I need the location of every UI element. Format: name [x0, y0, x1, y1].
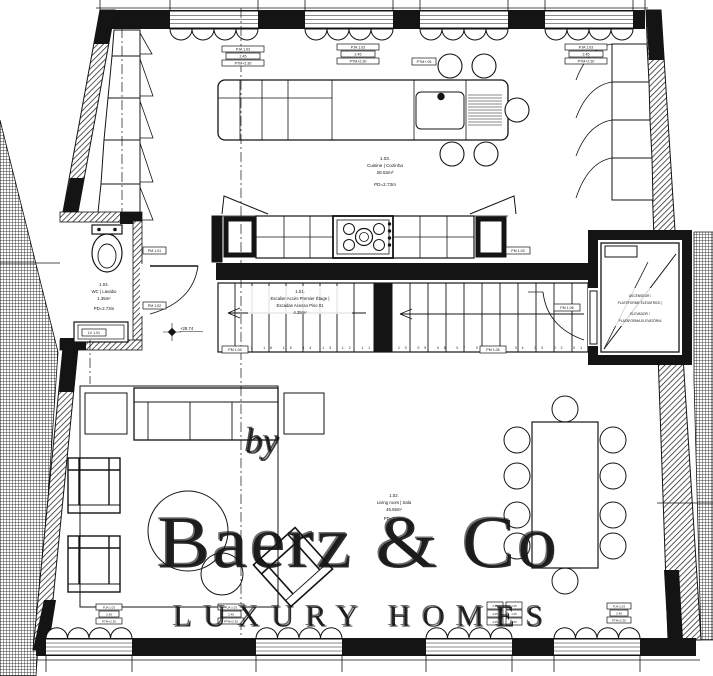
side-table-left — [85, 393, 127, 434]
svg-text:Escadas Acesso Piso 01: Escadas Acesso Piso 01 — [276, 303, 324, 308]
kitchen-counter — [212, 196, 516, 262]
svg-text:PM 1.01: PM 1.01 — [148, 249, 161, 253]
bottom-wall-ticks — [46, 656, 640, 672]
svg-text:PTM+2.30: PTM+2.30 — [578, 60, 595, 64]
top-window-shutters — [170, 29, 633, 40]
svg-text:PJA 1.03: PJA 1.03 — [236, 48, 250, 52]
svg-text:PD=2.73m: PD=2.73m — [94, 306, 115, 311]
svg-text:PM 1.03: PM 1.03 — [511, 249, 524, 253]
svg-text:2.45: 2.45 — [616, 612, 622, 616]
kitchen-island — [218, 80, 508, 140]
floor-plan-drawing: 1.03. Cuisine | Cozinha 28.52m² PD=2.73m — [0, 0, 713, 676]
side-table-right — [284, 393, 324, 434]
svg-text:28.52m²: 28.52m² — [377, 170, 394, 175]
svg-text:WC | Lavabo: WC | Lavabo — [92, 289, 117, 294]
toilet — [92, 225, 122, 272]
svg-text:PJA 1.03: PJA 1.03 — [579, 46, 593, 50]
svg-text:4.35m²: 4.35m² — [293, 310, 307, 315]
svg-text:PTM+2.30: PTM+2.30 — [350, 60, 367, 64]
svg-text:PJA 1.03: PJA 1.03 — [225, 606, 237, 610]
svg-text:Baerz & Co: Baerz & Co — [156, 501, 558, 583]
floor-plan-sheet: 1.03. Cuisine | Cozinha 28.52m² PD=2.73m — [0, 0, 713, 676]
svg-text:PTM+.05: PTM+.05 — [417, 60, 432, 64]
svg-text:PM 1.04: PM 1.04 — [228, 348, 241, 352]
svg-text:2.45: 2.45 — [240, 55, 247, 59]
armchair-2 — [68, 536, 120, 592]
svg-text:PLATAFORMA ELEVATÓRIA: PLATAFORMA ELEVATÓRIA — [619, 318, 663, 323]
svg-text:1.04.: 1.04. — [99, 282, 109, 287]
svg-text:1.03.: 1.03. — [380, 156, 390, 161]
svg-text:Cuisine | Cozinha: Cuisine | Cozinha — [367, 163, 403, 168]
svg-text:by: by — [244, 420, 278, 460]
watermark: by by Baerz & Co Baerz & Co LUXURY HOMES… — [156, 420, 560, 634]
svg-text:1.01.: 1.01. — [295, 289, 305, 294]
kitchen-cabinets-right — [576, 44, 653, 200]
svg-text:+28.74: +28.74 — [180, 326, 194, 331]
stove — [333, 216, 393, 258]
svg-text:PD=2.73m: PD=2.73m — [374, 182, 396, 187]
stair-wall-band — [216, 263, 588, 280]
kitchen-label: 1.03. Cuisine | Cozinha 28.52m² PD=2.73m — [367, 156, 403, 187]
svg-text:PM 1.02: PM 1.02 — [148, 304, 161, 308]
svg-text:PM 1.05: PM 1.05 — [486, 348, 499, 352]
svg-text:1.35m²: 1.35m² — [97, 296, 111, 301]
svg-text:PJA 1.03: PJA 1.03 — [103, 606, 115, 610]
watermark-by: by by — [244, 420, 280, 462]
watermark-brand: Baerz & Co Baerz & Co — [156, 501, 560, 585]
svg-text:1.02.: 1.02. — [389, 493, 399, 498]
svg-text:2.45: 2.45 — [228, 613, 234, 617]
wc-label: 1.04. WC | Lavabo 1.35m² PD=2.73m — [92, 282, 117, 311]
svg-text:LV 1.01: LV 1.01 — [88, 331, 100, 335]
armchair-1 — [68, 458, 120, 513]
svg-text:Escalier Accès Premier Étage |: Escalier Accès Premier Étage | — [271, 296, 330, 301]
svg-text:2.45: 2.45 — [355, 53, 362, 57]
svg-text:PJA 1.03: PJA 1.03 — [351, 46, 365, 50]
svg-text:ELEVADOR /: ELEVADOR / — [630, 312, 650, 316]
svg-text:PM 1.06: PM 1.06 — [560, 306, 573, 310]
top-wall — [96, 0, 648, 40]
top-wall-ticks — [100, 0, 645, 10]
level-marker: +28.74 — [163, 323, 203, 341]
bottom-wall — [30, 628, 700, 672]
svg-text:PLATEFORME ÉLÉVATRICE |: PLATEFORME ÉLÉVATRICE | — [618, 300, 663, 305]
svg-text:PTM+2.30: PTM+2.30 — [612, 619, 626, 623]
svg-text:PJA 1.03: PJA 1.03 — [613, 605, 625, 609]
svg-text:2.45: 2.45 — [106, 613, 112, 617]
svg-text:PTM+2.30: PTM+2.30 — [102, 620, 116, 624]
svg-text:PTM+2.30: PTM+2.30 — [235, 62, 252, 66]
svg-text:ASCENSEUR /: ASCENSEUR / — [629, 294, 651, 298]
svg-text:2.45: 2.45 — [583, 53, 590, 57]
